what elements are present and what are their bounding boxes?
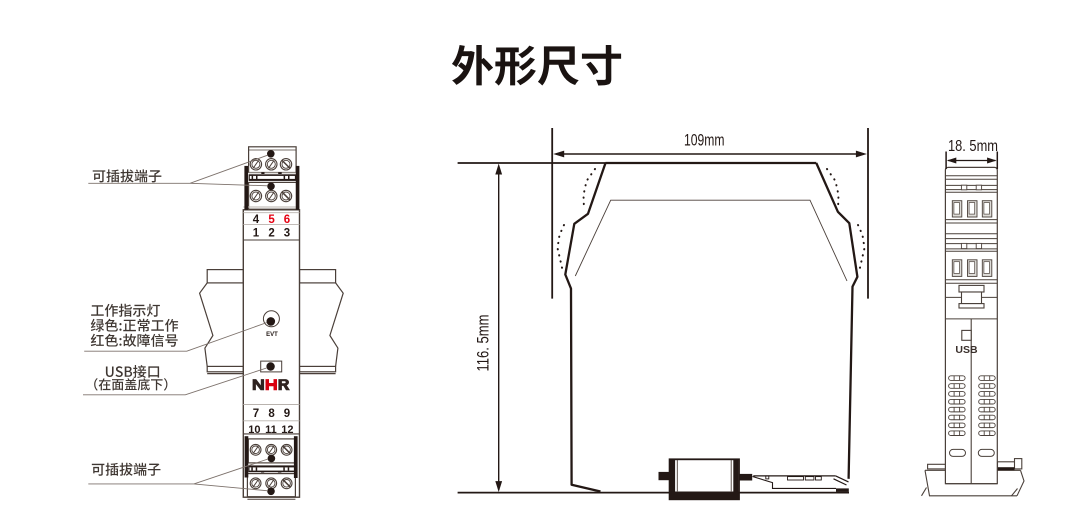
svg-text:2: 2	[268, 227, 274, 239]
svg-text:1: 1	[253, 227, 260, 239]
svg-text:EVT: EVT	[266, 332, 278, 338]
svg-text:9: 9	[284, 408, 290, 420]
svg-text:USB: USB	[955, 344, 978, 356]
svg-text:6: 6	[284, 214, 290, 226]
svg-text:4: 4	[253, 214, 260, 226]
svg-text:7: 7	[253, 408, 259, 420]
svg-text:3: 3	[284, 227, 290, 239]
svg-text:109mm: 109mm	[684, 131, 725, 149]
svg-text:5: 5	[268, 214, 275, 226]
svg-text:8: 8	[268, 408, 275, 420]
svg-text:18. 5mm: 18. 5mm	[948, 138, 998, 155]
svg-text:116. 5mm: 116. 5mm	[475, 315, 493, 372]
